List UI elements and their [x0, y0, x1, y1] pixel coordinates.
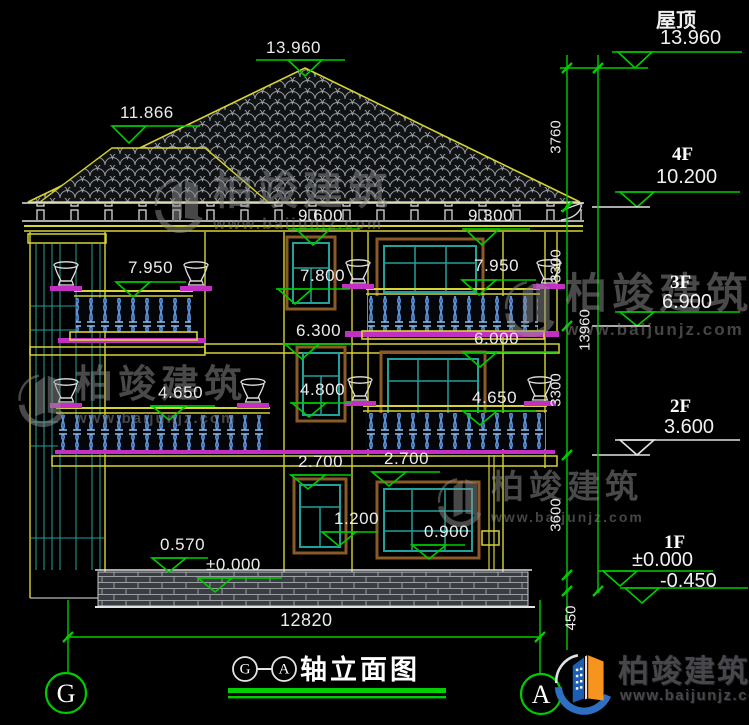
elevation-label: ±0.000: [206, 555, 261, 575]
elevation-label: 6.000: [474, 329, 519, 349]
elevation-label: 9.600: [298, 206, 343, 226]
watermark-site: www.baijunjz.com: [491, 509, 644, 525]
elevation-label: 13.960: [266, 38, 321, 58]
elevation-label: 4.650: [472, 388, 517, 408]
watermark: 柏竣建筑 www.baijunjz.com: [146, 170, 393, 234]
watermark-logo-icon: [146, 170, 210, 234]
floor-elev-3f: 6.900: [662, 291, 712, 314]
plinth: [30, 570, 535, 607]
watermark-brand: 柏竣建筑: [491, 470, 644, 505]
floor-name-4f: 4F: [672, 144, 693, 166]
elevation-label: 0.570: [160, 535, 205, 555]
overall-dimension: 12820: [280, 610, 333, 631]
dim-chain-label: 3600: [548, 498, 565, 531]
elevation-label: 1.200: [334, 509, 379, 529]
elevation-label: 2.700: [384, 449, 429, 469]
drawing-title: 轴立面图: [300, 648, 420, 687]
elevation-drawing: [0, 0, 749, 725]
elevation-label: 0.900: [424, 522, 469, 542]
floor-name-2f: 2F: [670, 396, 691, 418]
watermark-site: www.baijunjz.com: [75, 410, 247, 427]
title-axis-a: A: [279, 662, 290, 679]
dim-chain-label: 3300: [548, 249, 565, 282]
floor-elev-4f: 10.200: [656, 166, 717, 189]
balcony-3f-left: [70, 291, 197, 340]
elevation-label: 9.300: [468, 206, 513, 226]
right-dimension-chain: [562, 55, 603, 650]
watermark-logo-icon: [430, 470, 488, 528]
brand-name: 柏竣建筑: [618, 646, 749, 691]
balcony-2f-right: [363, 406, 547, 449]
dim-total-label: 13960: [577, 309, 594, 351]
brand-logo-icon: [546, 644, 618, 718]
watermark: 柏竣建筑 www.baijunjz.com: [10, 366, 247, 428]
watermark-logo-icon: [10, 366, 72, 428]
watermark: 柏竣建筑 www.baijunjz.com: [430, 470, 644, 528]
elevation-label: 6.300: [296, 321, 341, 341]
cad-elevation-sheet: 13.960 11.866 9.600 9.300 7.950 7.800 7.…: [0, 0, 749, 725]
elevation-label: 4.800: [300, 380, 345, 400]
title-axis-g: G: [240, 662, 251, 679]
floor-elev-2f: 3.600: [664, 416, 714, 439]
dim-chain-label: 3760: [548, 120, 565, 153]
axis-bubble-g: G: [57, 679, 76, 709]
floor-elev-1f: ±0.000: [632, 549, 693, 572]
floor-elev-roof: 13.960: [660, 27, 721, 50]
dim-chain-label: 450: [563, 605, 580, 630]
floor-elev-1f-below: -0.450: [660, 570, 717, 593]
elevation-label: 11.866: [120, 103, 174, 123]
elevation-label: 7.950: [474, 256, 519, 276]
elevation-label: 7.950: [128, 258, 173, 278]
dim-chain-label: 3300: [548, 373, 565, 406]
brand-site: www.baijunjz.com: [620, 687, 749, 704]
elevation-label: 7.800: [300, 266, 345, 286]
elevation-label: 2.700: [298, 452, 343, 472]
elevation-label: 4.650: [158, 383, 203, 403]
